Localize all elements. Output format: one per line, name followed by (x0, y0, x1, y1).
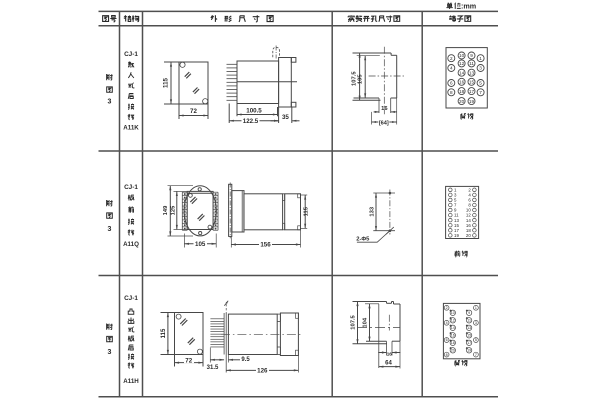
svg-text:125: 125 (170, 205, 176, 215)
svg-text:156: 156 (260, 242, 271, 249)
svg-text:13: 13 (469, 70, 475, 75)
svg-text:6: 6 (450, 81, 453, 86)
svg-text:115: 115 (161, 328, 167, 338)
svg-text:17: 17 (469, 89, 475, 94)
svg-text:A11H: A11H (123, 378, 139, 385)
svg-text:19: 19 (454, 233, 459, 238)
svg-text:A11Q: A11Q (123, 241, 139, 248)
svg-text:3: 3 (108, 98, 112, 105)
svg-text:16: 16 (381, 106, 388, 112)
svg-text:72: 72 (190, 108, 197, 115)
svg-text:115: 115 (163, 77, 170, 88)
svg-text:17: 17 (467, 341, 471, 345)
svg-text:18: 18 (451, 341, 455, 345)
svg-text:14: 14 (459, 70, 465, 75)
svg-text:107.5: 107.5 (350, 314, 356, 329)
svg-text:2: 2 (446, 306, 448, 310)
svg-text:35: 35 (282, 114, 289, 121)
svg-text:4: 4 (450, 66, 453, 71)
svg-text:): ) (466, 251, 468, 258)
svg-text:8: 8 (446, 353, 448, 357)
svg-text:3: 3 (475, 321, 477, 325)
svg-text:3: 3 (108, 226, 112, 233)
svg-text:16: 16 (451, 334, 455, 338)
svg-text:2: 2 (450, 56, 453, 61)
svg-text:9: 9 (468, 311, 470, 315)
svg-text:15: 15 (469, 80, 475, 85)
svg-text:11: 11 (467, 319, 471, 323)
svg-text:16: 16 (387, 352, 393, 357)
svg-text:3: 3 (479, 66, 482, 71)
svg-text:7: 7 (475, 353, 477, 357)
svg-text:5: 5 (475, 338, 477, 342)
svg-text:20: 20 (466, 233, 471, 238)
svg-text:104: 104 (362, 317, 368, 327)
svg-text:2-Φ5: 2-Φ5 (356, 237, 370, 243)
svg-text:12: 12 (459, 61, 465, 66)
svg-text:CJ-1: CJ-1 (124, 295, 138, 302)
svg-text:19: 19 (467, 349, 471, 353)
svg-text:126: 126 (257, 367, 268, 374)
svg-text:31.5: 31.5 (207, 365, 219, 371)
svg-text:CJ-1: CJ-1 (124, 184, 138, 191)
svg-text:149: 149 (163, 205, 169, 215)
svg-text:10: 10 (451, 311, 455, 315)
svg-text:122.5: 122.5 (243, 118, 259, 125)
svg-text:7: 7 (479, 90, 482, 95)
svg-text:13: 13 (467, 326, 471, 330)
svg-text:16: 16 (459, 80, 465, 85)
svg-text:1: 1 (475, 306, 477, 310)
svg-text:14: 14 (451, 326, 455, 330)
svg-text:15: 15 (467, 334, 471, 338)
svg-text:72: 72 (185, 357, 192, 364)
svg-text:20: 20 (451, 349, 455, 353)
svg-text:18: 18 (459, 89, 465, 94)
svg-text:105: 105 (195, 241, 206, 248)
svg-text:19: 19 (469, 99, 475, 104)
svg-text:9.5: 9.5 (241, 357, 250, 363)
svg-text:115: 115 (304, 206, 310, 216)
svg-text:6: 6 (446, 338, 448, 342)
svg-text:100.5: 100.5 (246, 108, 262, 115)
svg-text:CJ-1: CJ-1 (124, 51, 138, 58)
svg-text::mm: :mm (461, 2, 476, 11)
svg-text:3: 3 (108, 349, 112, 356)
svg-text:): ) (471, 113, 473, 120)
svg-text:11: 11 (469, 61, 474, 66)
svg-text:4: 4 (446, 321, 448, 325)
svg-text:5: 5 (479, 81, 482, 86)
svg-text:64: 64 (385, 361, 392, 367)
svg-text:8: 8 (450, 90, 453, 95)
svg-text:10: 10 (459, 53, 465, 58)
svg-text:133: 133 (370, 206, 376, 216)
svg-text:A11K: A11K (123, 125, 139, 132)
svg-text:9: 9 (470, 53, 473, 58)
svg-text:12: 12 (451, 319, 455, 323)
svg-text:105: 105 (358, 74, 364, 84)
svg-text:1: 1 (479, 56, 482, 61)
svg-text:[64]: [64] (379, 120, 389, 126)
svg-text:20: 20 (459, 99, 465, 104)
svg-text:): ) (465, 360, 467, 367)
